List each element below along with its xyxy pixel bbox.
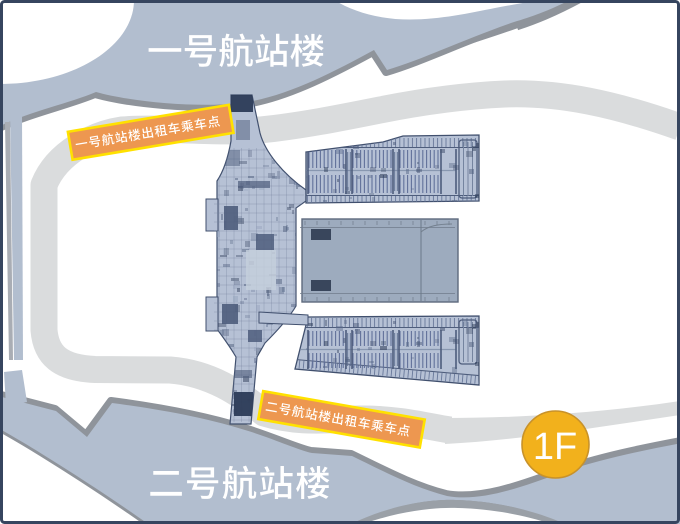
svg-text:1F: 1F [533, 426, 577, 468]
